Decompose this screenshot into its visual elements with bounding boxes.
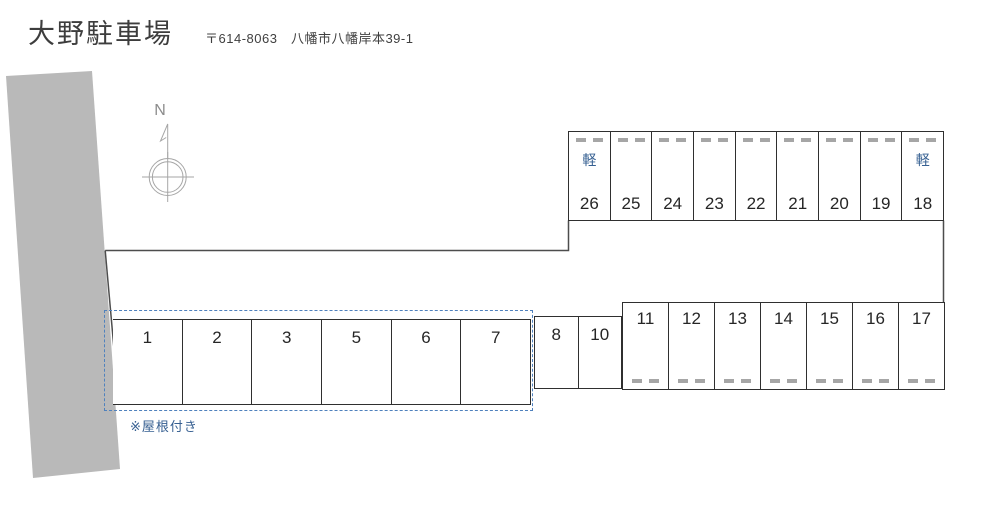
space-number: 16 (853, 309, 898, 329)
parking-row-middle: 8 10 (534, 316, 622, 389)
kei-car-label: 軽 (569, 150, 610, 170)
parking-space-23: 23 (694, 132, 736, 220)
space-number: 26 (569, 194, 610, 214)
wheel-stop-dashes (623, 379, 668, 383)
space-number: 3 (252, 328, 321, 348)
wheel-stop-dashes (694, 138, 735, 142)
parking-space-24: 24 (652, 132, 694, 220)
space-number: 19 (861, 194, 902, 214)
parking-map: 大野駐車場 〒614-8063 八幡市八幡岸本39-1 N 軽 26 (0, 0, 1000, 522)
parking-space-11: 11 (623, 303, 669, 389)
space-number: 11 (623, 309, 668, 329)
wheel-stop-dashes (807, 379, 852, 383)
parking-space-14: 14 (761, 303, 807, 389)
space-number: 15 (807, 309, 852, 329)
wheel-stop-dashes (611, 138, 652, 142)
wheel-stop-dashes (902, 138, 943, 142)
parking-space-10: 10 (579, 317, 622, 388)
parking-space-21: 21 (777, 132, 819, 220)
space-number: 2 (183, 328, 252, 348)
space-number: 17 (899, 309, 944, 329)
wheel-stop-dashes (853, 379, 898, 383)
parking-space-3: 3 (252, 320, 322, 404)
parking-space-5: 5 (322, 320, 392, 404)
wheel-stop-dashes (652, 138, 693, 142)
parking-space-20: 20 (819, 132, 861, 220)
parking-row-right: 11 12 13 14 15 16 17 (622, 302, 945, 390)
space-number: 8 (535, 325, 578, 345)
space-number: 20 (819, 194, 860, 214)
wheel-stop-dashes (715, 379, 760, 383)
wheel-stop-dashes (861, 138, 902, 142)
parking-space-2: 2 (183, 320, 253, 404)
parking-space-15: 15 (807, 303, 853, 389)
compass-icon (142, 124, 194, 202)
covered-area-note: ※屋根付き (130, 416, 198, 435)
space-number: 23 (694, 194, 735, 214)
parking-space-22: 22 (736, 132, 778, 220)
wheel-stop-dashes (899, 379, 944, 383)
space-number: 14 (761, 309, 806, 329)
space-number: 21 (777, 194, 818, 214)
space-number: 7 (461, 328, 530, 348)
space-number: 1 (113, 328, 182, 348)
parking-space-7: 7 (461, 320, 530, 404)
parking-space-6: 6 (392, 320, 462, 404)
space-number: 13 (715, 309, 760, 329)
parking-space-8: 8 (535, 317, 579, 388)
parking-space-26: 軽 26 (569, 132, 611, 220)
parking-space-12: 12 (669, 303, 715, 389)
space-number: 18 (902, 194, 943, 214)
site-plan-graphics (0, 0, 1000, 522)
north-label: N (149, 102, 171, 120)
parking-space-18: 軽 18 (902, 132, 943, 220)
space-number: 22 (736, 194, 777, 214)
wheel-stop-dashes (761, 379, 806, 383)
parking-space-25: 25 (611, 132, 653, 220)
wheel-stop-dashes (777, 138, 818, 142)
space-number: 5 (322, 328, 391, 348)
kei-car-label: 軽 (902, 150, 943, 170)
wheel-stop-dashes (569, 138, 610, 142)
space-number: 24 (652, 194, 693, 214)
parking-space-17: 17 (899, 303, 944, 389)
parking-row-covered: 1 2 3 5 6 7 (113, 319, 531, 405)
parking-space-1: 1 (113, 320, 183, 404)
space-number: 10 (579, 325, 622, 345)
wheel-stop-dashes (819, 138, 860, 142)
road-strip (6, 71, 120, 478)
space-number: 12 (669, 309, 714, 329)
parking-space-13: 13 (715, 303, 761, 389)
space-number: 6 (392, 328, 461, 348)
wheel-stop-dashes (736, 138, 777, 142)
parking-space-19: 19 (861, 132, 903, 220)
wheel-stop-dashes (669, 379, 714, 383)
parking-row-top: 軽 26 25 24 23 22 21 20 19 (568, 131, 944, 221)
parking-space-16: 16 (853, 303, 899, 389)
space-number: 25 (611, 194, 652, 214)
